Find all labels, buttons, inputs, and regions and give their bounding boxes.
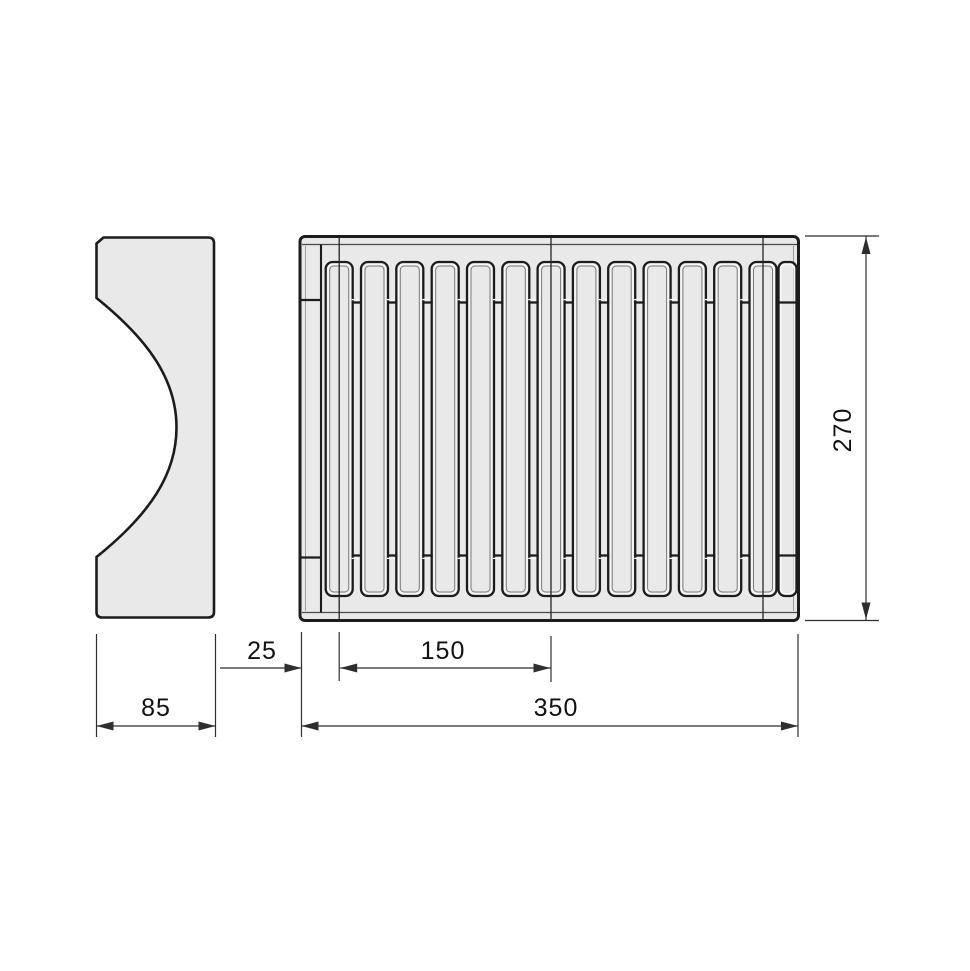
dim-350: 350 (302, 694, 799, 731)
dim-350-label: 350 (534, 694, 579, 722)
dim-270: 270 (829, 237, 871, 621)
panel-outline (300, 237, 799, 621)
side-profile-view (97, 238, 215, 618)
dim-350-arrow-right-icon (781, 722, 798, 731)
dim-270-arrow-up-icon (862, 237, 871, 254)
dim-85-arrow-left-icon (97, 722, 114, 731)
front-grille-view (300, 237, 799, 621)
dim-150: 150 (340, 637, 550, 673)
dim-150-arrow-right-icon (534, 664, 551, 673)
dim-25-arrow-right-icon (285, 664, 302, 673)
dim-270-arrow-down-icon (862, 603, 871, 620)
dim-85-arrow-right-icon (199, 722, 216, 731)
technical-drawing-canvas: 25 150 350 85 270 (0, 0, 970, 971)
dim-85: 85 (97, 694, 216, 731)
side-profile-outline (97, 238, 215, 618)
dim-350-arrow-left-icon (302, 722, 319, 731)
dim-150-label: 150 (421, 637, 466, 665)
dim-25: 25 (220, 637, 302, 673)
dim-150-arrow-left-icon (340, 664, 357, 673)
dim-270-label: 270 (829, 408, 857, 453)
dim-85-label: 85 (141, 694, 171, 722)
dim-25-label: 25 (247, 637, 277, 665)
